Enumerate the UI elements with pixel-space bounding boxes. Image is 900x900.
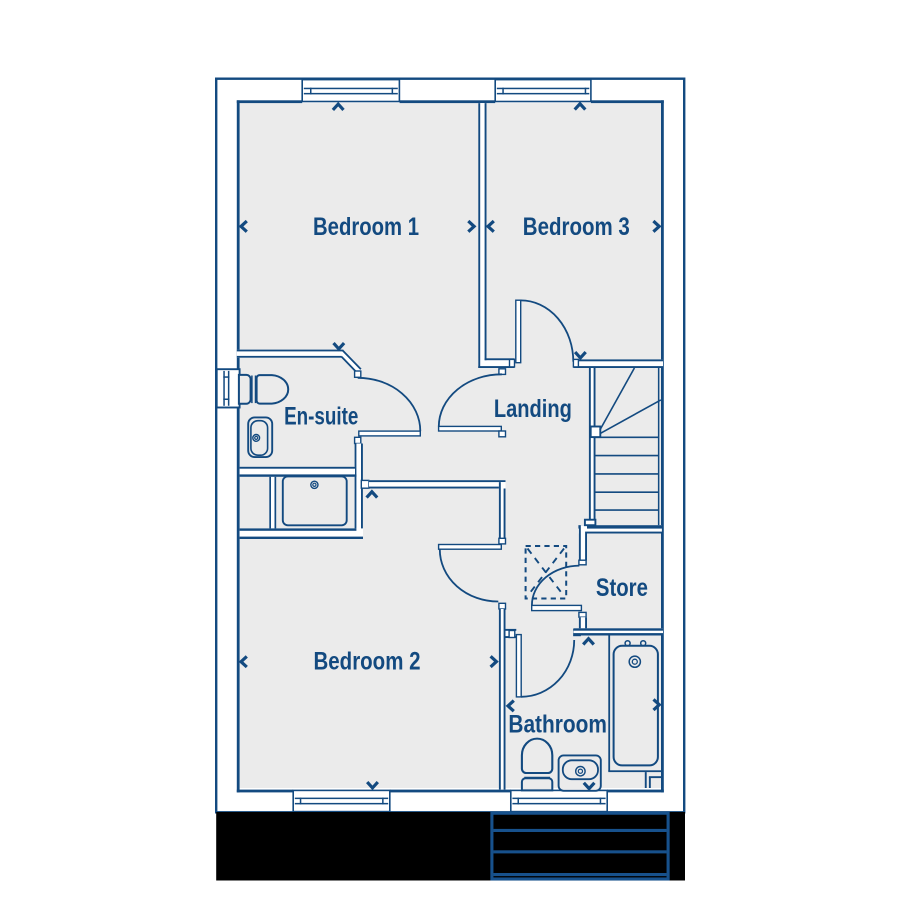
- svg-text:Landing: Landing: [494, 395, 572, 423]
- svg-text:Bathroom: Bathroom: [508, 711, 607, 739]
- svg-text:Bedroom 2: Bedroom 2: [314, 647, 421, 675]
- svg-text:Bedroom 3: Bedroom 3: [523, 213, 630, 241]
- svg-text:Store: Store: [596, 574, 648, 602]
- svg-text:En-suite: En-suite: [284, 402, 358, 430]
- svg-text:Bedroom 1: Bedroom 1: [313, 213, 419, 241]
